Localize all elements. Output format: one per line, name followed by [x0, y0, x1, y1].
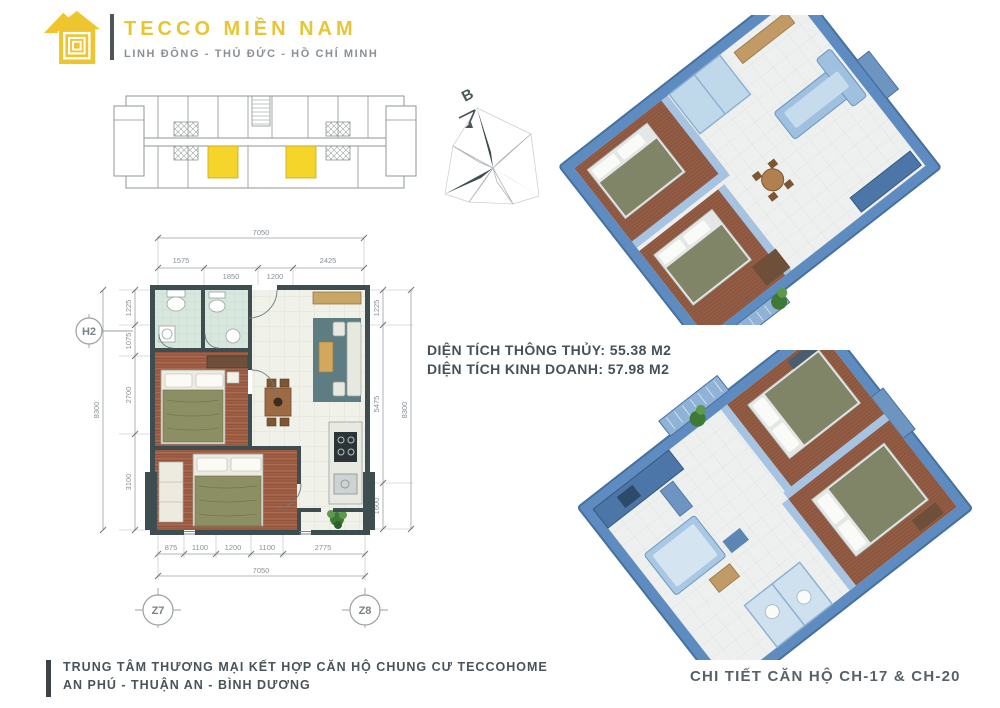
- console-cabinet: [313, 292, 361, 304]
- highlighted-unit-ch20: [286, 146, 316, 178]
- dim-bottom-total: 7050: [253, 566, 270, 575]
- caption-bar: [46, 660, 51, 697]
- dim-top-total: 7050: [253, 228, 270, 237]
- bedroom2-furniture: [159, 454, 263, 526]
- brand-header: TECCO MIỀN NAM LINH ĐÔNG - THỦ ĐỨC - HỒ …: [40, 6, 378, 66]
- unit-detail-caption: CHI TIẾT CĂN HỘ CH-17 & CH-20: [690, 668, 961, 685]
- compass-north-label: B: [459, 85, 477, 105]
- dim-left-seg3: 2700: [124, 387, 133, 404]
- house-logo-icon: [40, 6, 102, 66]
- kitchen: [329, 422, 362, 504]
- sofa: [347, 322, 361, 396]
- north-compass-icon: B: [435, 82, 547, 208]
- brand-tagline: LINH ĐÔNG - THỦ ĐỨC - HỒ CHÍ MINH: [124, 48, 378, 60]
- floorplan-2d: 7050 1575 1850 1200 2425 8300 1225 1075 …: [75, 222, 425, 630]
- highlighted-unit-ch17: [208, 146, 238, 178]
- project-caption-line2: AN PHÚ - THUẬN AN - BÌNH DƯƠNG: [63, 676, 548, 694]
- dim-bottom-seg4: 1100: [259, 543, 275, 552]
- render-3d-bottom: [550, 350, 995, 660]
- stair-core: [252, 96, 270, 126]
- floorplan-sheet: TECCO MIỀN NAM LINH ĐÔNG - THỦ ĐỨC - HỒ …: [0, 0, 1000, 708]
- building-key-plan: [112, 90, 418, 194]
- dim-left-seg4: 3100: [124, 474, 133, 491]
- coffee-table: [319, 342, 333, 372]
- grid-bubble-z8-label: Z8: [359, 605, 372, 617]
- render-3d-top: [540, 15, 970, 325]
- dim-right-seg2: 5475: [372, 396, 381, 413]
- dim-bottom-seg3: 1200: [225, 543, 242, 552]
- dim-right-seg1: 1225: [372, 300, 381, 317]
- dim-bottom-seg5: 2775: [315, 543, 332, 552]
- logo-divider: [110, 14, 114, 60]
- dim-top-seg4: 2425: [320, 256, 337, 265]
- dim-bottom-seg2: 1100: [192, 543, 208, 552]
- dim-left-seg1: 1225: [124, 300, 133, 317]
- dim-bottom-seg1: 875: [165, 543, 178, 552]
- dim-left-seg2: 1075: [124, 333, 133, 350]
- dim-right-total: 8300: [400, 402, 409, 419]
- brand-name: TECCO MIỀN NAM: [124, 18, 378, 41]
- grid-bubble-z7-label: Z7: [152, 605, 165, 617]
- dim-top-seg3: 1200: [267, 272, 284, 281]
- grid-bubble-h2-label: H2: [82, 326, 96, 338]
- project-caption-line1: TRUNG TÂM THƯƠNG MẠI KẾT HỢP CĂN HỘ CHUN…: [63, 658, 548, 676]
- dim-top-seg1: 1575: [173, 256, 190, 265]
- project-caption: TRUNG TÂM THƯƠNG MẠI KẾT HỢP CĂN HỘ CHUN…: [46, 658, 548, 697]
- dim-left-total: 8300: [92, 402, 101, 419]
- dim-top-seg2: 1850: [223, 272, 240, 281]
